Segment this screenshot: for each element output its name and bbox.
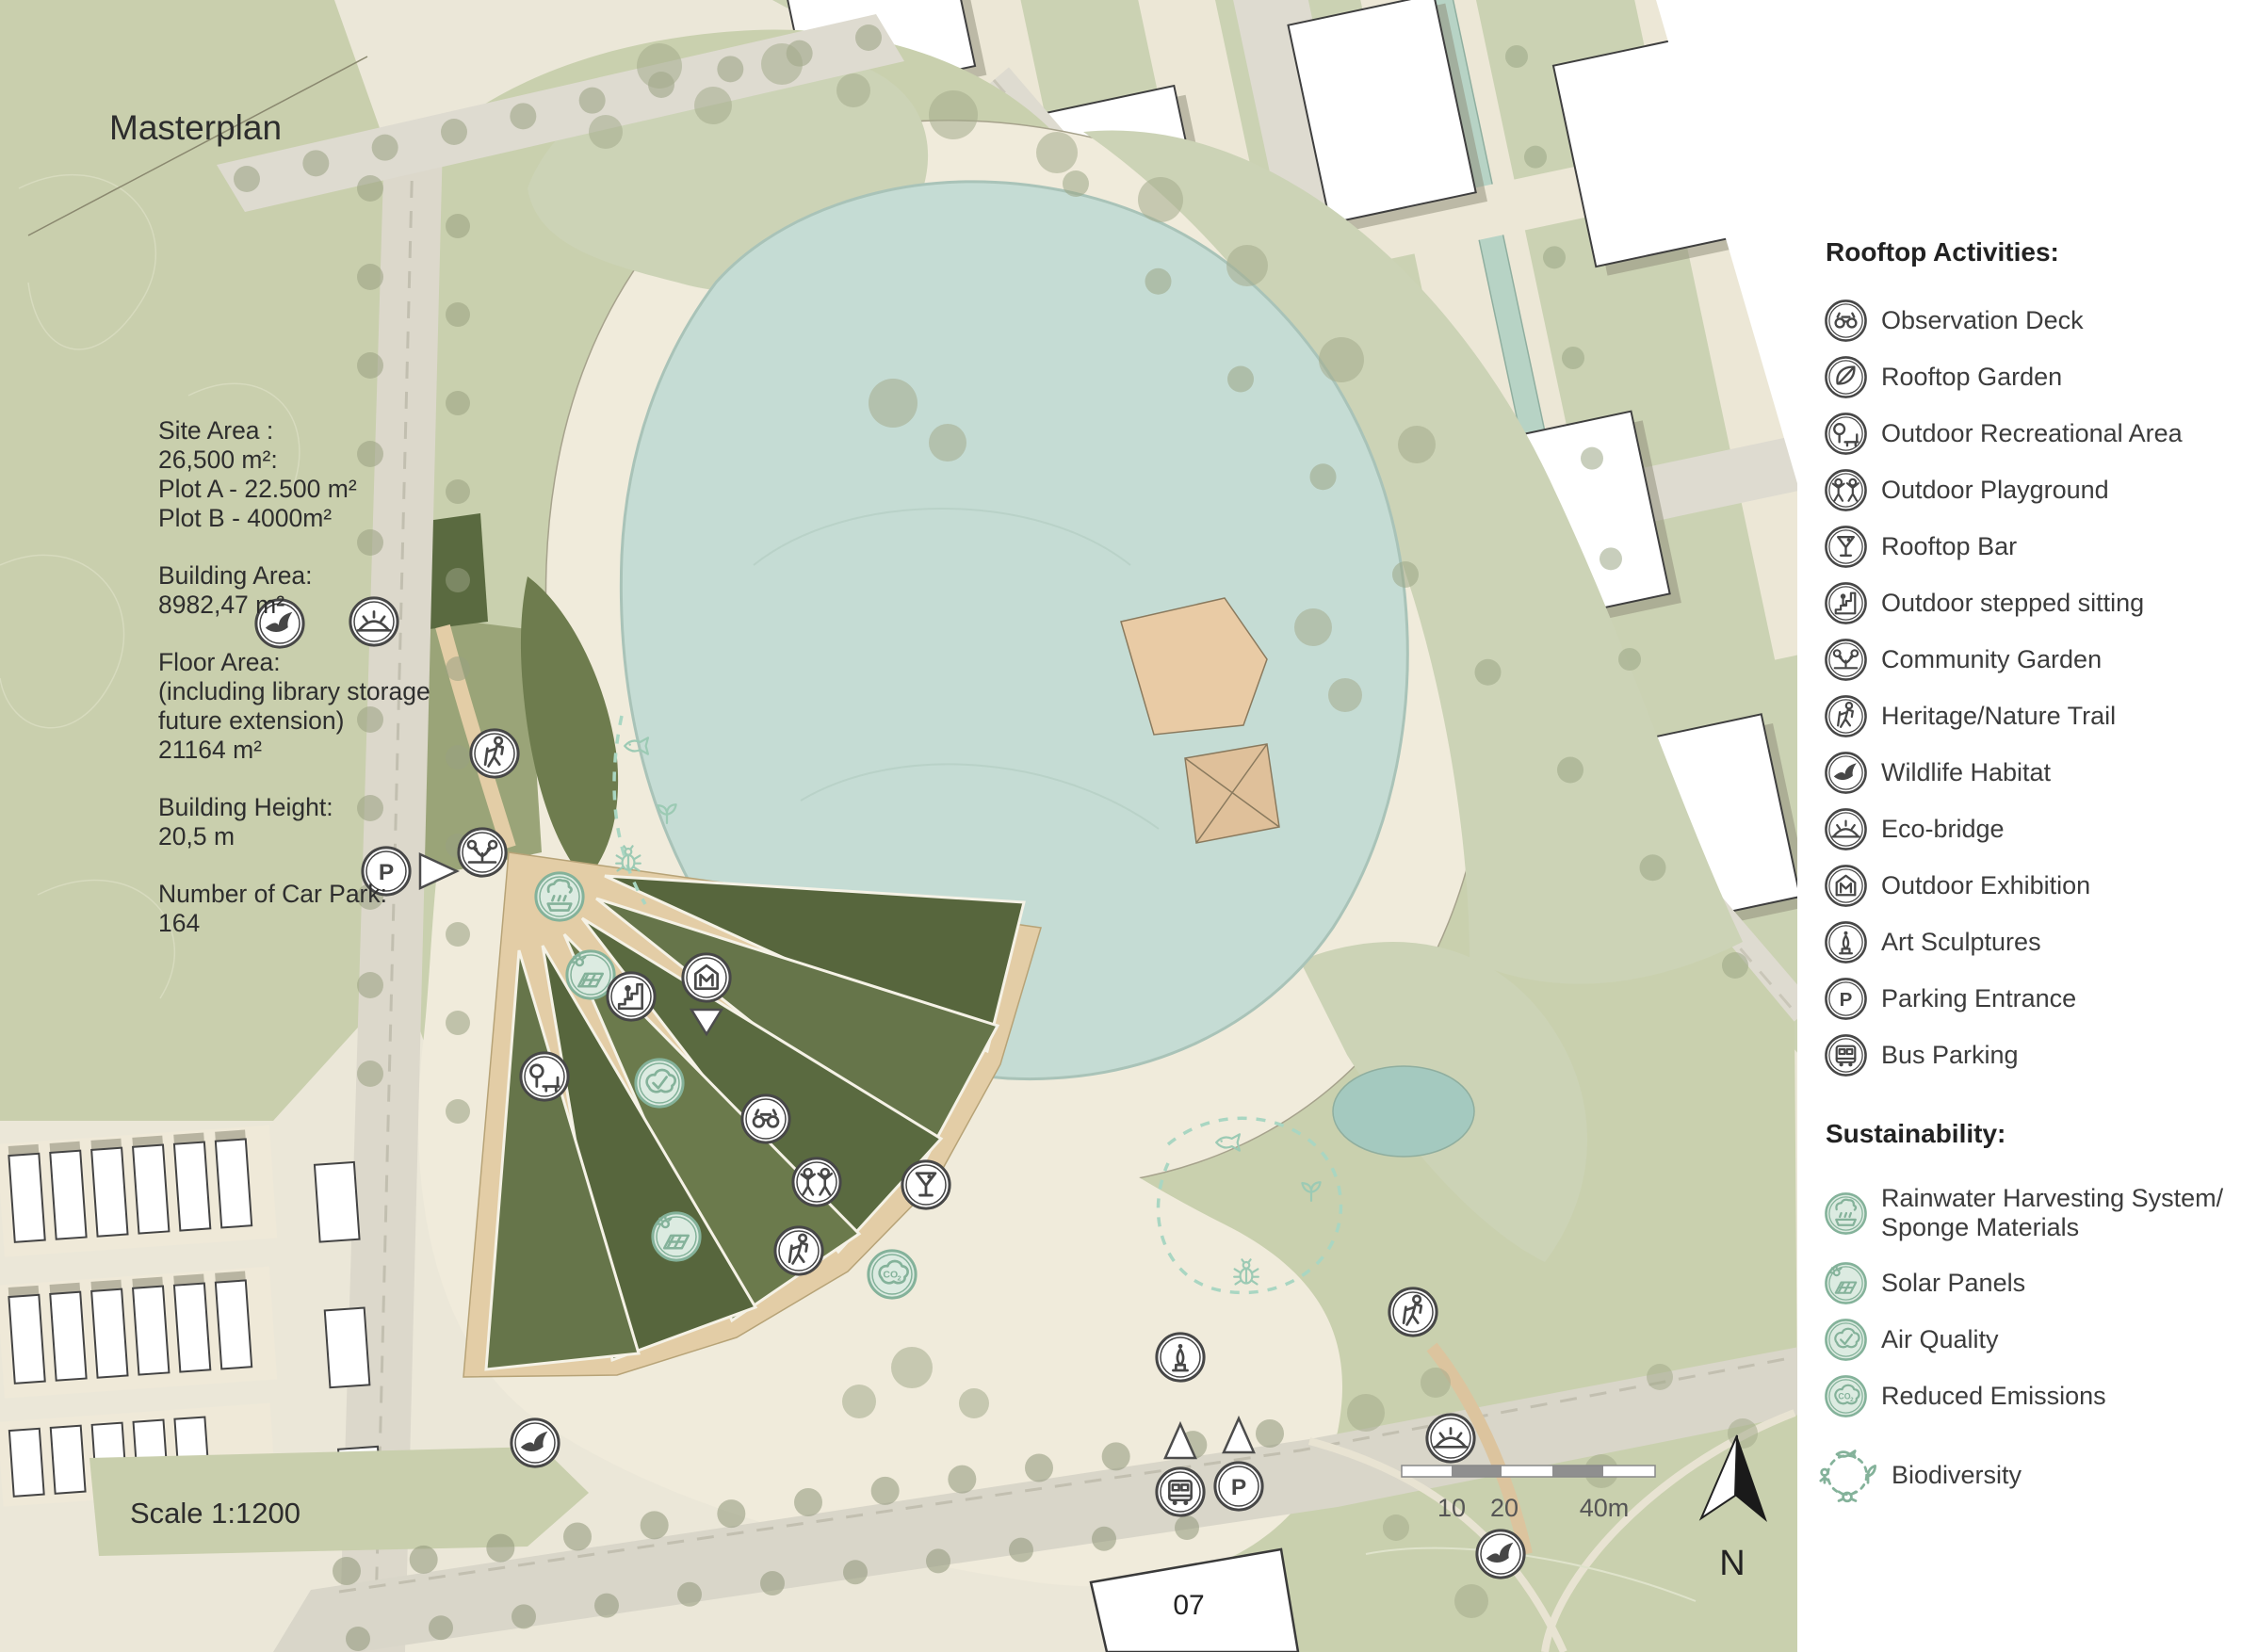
legend-item-label: Rainwater Harvesting System/Sponge Mater… [1881, 1184, 2223, 1242]
stat-line: 26,500 m²: [158, 445, 430, 475]
legend-item-label: Solar Panels [1881, 1269, 2025, 1298]
legend-item-label: Reduced Emissions [1881, 1382, 2106, 1411]
legend-item: Community Garden [1797, 631, 2241, 688]
stat-line: (including library storage [158, 677, 430, 706]
legend-item: Outdoor Playground [1797, 462, 2241, 518]
outdoor-stepped-sitting-icon [1824, 581, 1868, 625]
wildlife-habitat-icon [1477, 1531, 1524, 1578]
legend-item-label: Outdoor Recreational Area [1881, 419, 2183, 448]
legend-item-label: Art Sculptures [1881, 928, 2041, 957]
reduced-emissions-icon [869, 1251, 916, 1298]
stat-line: 21164 m² [158, 736, 430, 765]
rooftop-bar-icon [1824, 525, 1868, 569]
north-label: N [1719, 1544, 1745, 1583]
legend-item: Air Quality [1797, 1311, 2241, 1368]
car-park-block: Number of Car Park: 164 [158, 880, 430, 938]
stat-line: 8982,47 m² [158, 591, 430, 620]
rooftop-garden-icon [1824, 355, 1868, 399]
eco-bridge-icon [1427, 1415, 1474, 1462]
rooftop-activities-header: Rooftop Activities: [1826, 237, 2059, 267]
heritage-nature-trail-icon [1824, 694, 1868, 738]
outdoor-playground-icon [793, 1158, 840, 1206]
legend-item: Biodiversity [1797, 1432, 2241, 1518]
masterplan-page: { "title": "Masterplan", "scale_label": … [0, 0, 2241, 1652]
stat-line: Floor Area: [158, 648, 430, 677]
observation-deck-icon [1824, 299, 1868, 343]
legend-item: Rooftop Bar [1797, 518, 2241, 575]
wetland-pond [1333, 1066, 1474, 1157]
rooftop-activities-list: Observation Deck Rooftop Garden Outdoor … [1797, 292, 2241, 1083]
legend-item: Rainwater Harvesting System/Sponge Mater… [1797, 1172, 2241, 1255]
legend-item-label: Community Garden [1881, 645, 2102, 674]
community-garden-icon [1824, 638, 1868, 682]
legend-panel: Rooftop Activities: Observation Deck Roo… [1797, 0, 2241, 1652]
scale-bar-label-10: 10 [1437, 1494, 1466, 1522]
legend-item: Art Sculptures [1797, 914, 2241, 970]
legend-item: Heritage/Nature Trail [1797, 688, 2241, 744]
legend-item-label: Wildlife Habitat [1881, 758, 2051, 787]
legend-item-label: Eco-bridge [1881, 815, 2005, 844]
legend-item: Outdoor stepped sitting [1797, 575, 2241, 631]
legend-item: Bus Parking [1797, 1027, 2241, 1083]
legend-item: Parking Entrance [1797, 970, 2241, 1027]
legend-item-label: Outdoor stepped sitting [1881, 589, 2144, 618]
rainwater-icon [536, 873, 583, 920]
stat-line: Plot A - 22.500 m² [158, 475, 430, 504]
reduced-emissions-icon [1824, 1374, 1868, 1418]
legend-item: Outdoor Recreational Area [1797, 405, 2241, 462]
legend-item: Solar Panels [1797, 1255, 2241, 1311]
scale-label: Scale 1:1200 [130, 1497, 300, 1530]
stat-line: Site Area : [158, 416, 430, 445]
biodiversity-icon [1816, 1444, 1878, 1506]
legend-item-label: Rooftop Garden [1881, 363, 2062, 392]
solar-panels-icon [1824, 1261, 1868, 1305]
legend-item-label: Rooftop Bar [1881, 532, 2017, 561]
site-statistics: Site Area : 26,500 m²: Plot A - 22.500 m… [158, 416, 430, 966]
legend-item-label: Outdoor Exhibition [1881, 871, 2090, 900]
scale-bar-label-20: 20 [1490, 1494, 1518, 1522]
air-quality-icon [1824, 1318, 1868, 1362]
stat-line: 164 [158, 909, 430, 938]
art-sculptures-icon [1824, 920, 1868, 964]
outdoor-recreational-area-icon [521, 1053, 568, 1100]
building-area-block: Building Area: 8982,47 m² [158, 561, 430, 620]
floor-area-block: Floor Area: (including library storage f… [158, 648, 430, 765]
parking-entrance-icon [1824, 977, 1868, 1021]
outdoor-exhibition-icon [683, 954, 730, 1001]
heritage-nature-trail-icon [775, 1227, 822, 1274]
outdoor-playground-icon [1824, 468, 1868, 512]
heritage-nature-trail-icon [471, 730, 518, 777]
outdoor-exhibition-icon [1824, 864, 1868, 908]
legend-item: Eco-bridge [1797, 801, 2241, 857]
legend-item-label: Parking Entrance [1881, 984, 2076, 1013]
community-garden-icon [459, 829, 506, 876]
legend-item: Rooftop Garden [1797, 348, 2241, 405]
scale-bar-label-40m: 40m [1580, 1494, 1630, 1522]
legend-item: Wildlife Habitat [1797, 744, 2241, 801]
outdoor-recreational-area-icon [1824, 412, 1868, 456]
bus-parking-icon [1157, 1468, 1204, 1515]
legend-item-label: Heritage/Nature Trail [1881, 702, 2116, 731]
solar-panels-icon [653, 1213, 700, 1260]
stat-line: Plot B - 4000m² [158, 504, 430, 533]
legend-item-label: Bus Parking [1881, 1041, 2019, 1070]
rooftop-bar-icon [902, 1161, 950, 1208]
air-quality-icon [636, 1060, 683, 1107]
stat-line: future extension) [158, 706, 430, 736]
site-area-block: Site Area : 26,500 m²: Plot A - 22.500 m… [158, 416, 430, 533]
heritage-nature-trail-icon [1389, 1288, 1437, 1336]
legend-item-label: Outdoor Playground [1881, 476, 2109, 505]
building-07-label: 07 [1173, 1590, 1204, 1621]
outdoor-stepped-sitting-icon [608, 973, 655, 1020]
wildlife-habitat-icon [512, 1419, 559, 1466]
stat-line: Building Height: [158, 793, 430, 822]
stat-line: Number of Car Park: [158, 880, 430, 909]
art-sculptures-icon [1157, 1334, 1204, 1381]
legend-item: Reduced Emissions [1797, 1368, 2241, 1424]
stat-line: 20,5 m [158, 822, 430, 851]
observation-deck-icon [742, 1095, 789, 1142]
stat-line: Building Area: [158, 561, 430, 591]
sustainability-list: Rainwater Harvesting System/Sponge Mater… [1797, 1172, 2241, 1518]
wildlife-habitat-icon [1824, 751, 1868, 795]
page-title: Masterplan [109, 108, 282, 147]
eco-bridge-icon [1824, 807, 1868, 851]
legend-item: Observation Deck [1797, 292, 2241, 348]
legend-item-label: Air Quality [1881, 1325, 1999, 1354]
bus-parking-icon [1824, 1033, 1868, 1077]
legend-item: Outdoor Exhibition [1797, 857, 2241, 914]
rainwater-icon [1824, 1191, 1868, 1236]
sustainability-header: Sustainability: [1826, 1119, 2006, 1149]
legend-item-label: Observation Deck [1881, 306, 2084, 335]
building-height-block: Building Height: 20,5 m [158, 793, 430, 851]
parking-entrance-icon [1215, 1463, 1262, 1510]
legend-item-label: Biodiversity [1892, 1461, 2022, 1490]
